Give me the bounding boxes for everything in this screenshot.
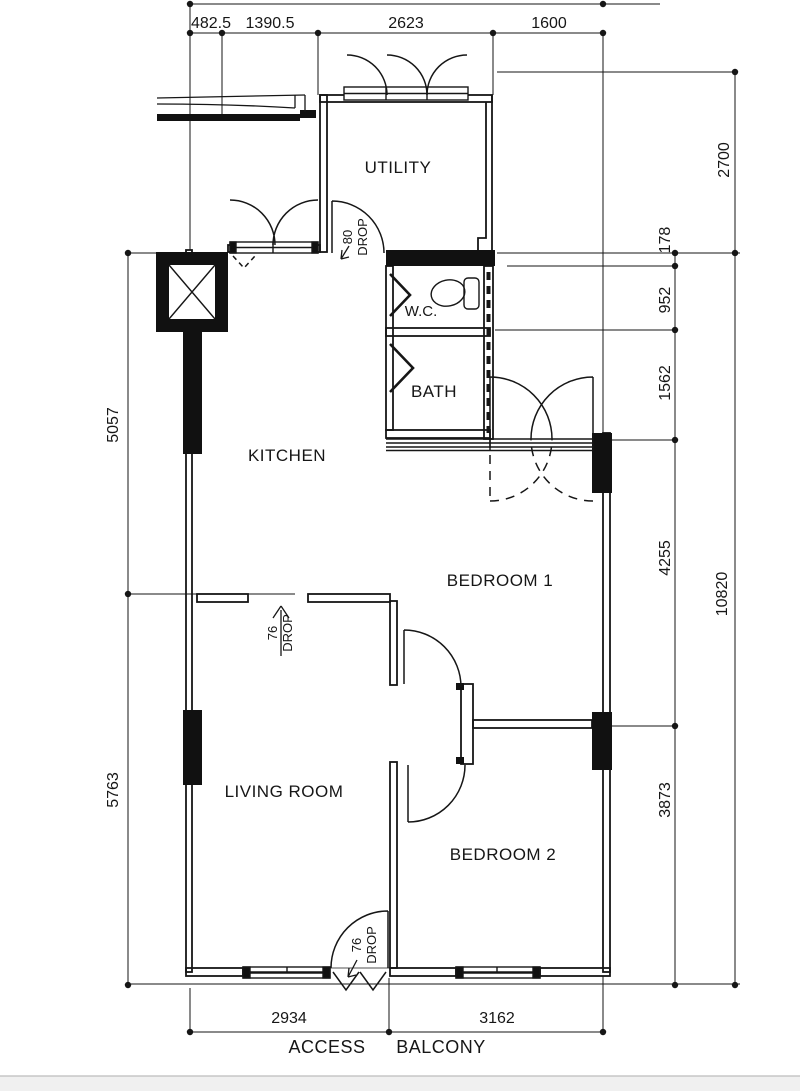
dim-top-4: 1600 (531, 15, 567, 32)
dim-top-1: 482.5 (191, 15, 231, 32)
room-label-utility: UTILITY (365, 158, 432, 177)
drop-arrows (273, 246, 357, 977)
dim-left-1: 5057 (105, 407, 122, 443)
bedroom1-column (592, 433, 612, 493)
wc-black-wall (386, 250, 495, 266)
dim-bottom-1: 2934 (271, 1010, 307, 1027)
room-label-bedroom2: BEDROOM 2 (450, 845, 557, 864)
footer-bar (0, 1076, 800, 1091)
zone-label-access: ACCESS (288, 1037, 365, 1057)
dim-right-inner-5: 3873 (657, 782, 674, 818)
room-label-living: LIVING ROOM (225, 782, 344, 801)
dimension-ticks (125, 1, 738, 1035)
walkway-canopy (157, 95, 305, 112)
zone-label-balcony: BALCONY (396, 1037, 486, 1057)
floor-plan-drawing: UTILITY KITCHEN W.C. BATH BEDROOM 1 LIVI… (0, 0, 800, 1091)
door-jamb-top (456, 683, 464, 690)
door-jamb-bottom (456, 757, 464, 764)
floor-plan-page: UTILITY KITCHEN W.C. BATH BEDROOM 1 LIVI… (0, 0, 800, 1091)
dimension-lines (128, 4, 740, 1032)
entry-drop-arrow (348, 960, 357, 977)
dim-right-inner-2: 952 (657, 287, 674, 314)
zone-labels: ACCESS BALCONY (288, 1037, 485, 1057)
room-label-bedroom1: BEDROOM 1 (447, 571, 554, 590)
walls (186, 95, 610, 976)
walkway-edge-bar-2 (300, 110, 316, 118)
dim-right-outer-2: 10820 (714, 572, 731, 617)
dim-bottom-2: 3162 (479, 1010, 515, 1027)
dim-top-2: 1390.5 (246, 15, 295, 32)
living-wall-pier (183, 710, 202, 785)
drop-labels: 80 DROP 76 DROP 76 DROP (265, 218, 379, 964)
kitchen-wall-pier (183, 332, 202, 454)
room-label-kitchen: KITCHEN (248, 446, 326, 465)
dim-right-inner-3: 1562 (657, 365, 674, 401)
room-label-bath: BATH (411, 382, 457, 401)
bedroom2-column (592, 712, 612, 770)
entry-drop-word: DROP (364, 926, 379, 964)
entry-drop-value: 76 (349, 938, 364, 952)
refuse-chute-inner (169, 265, 215, 319)
dim-right-outer-1: 2700 (716, 142, 733, 178)
room-label-wc: W.C. (405, 303, 438, 320)
dim-left-2: 5763 (105, 772, 122, 808)
utility-drop-value: 80 (340, 230, 355, 244)
walkway-edge-bar (157, 114, 300, 121)
kitchen-drop-word: DROP (280, 614, 295, 652)
dim-right-inner-1: 178 (657, 227, 674, 254)
dim-top-3: 2623 (388, 15, 424, 32)
utility-drop-arrow (341, 246, 349, 259)
utility-drop-word: DROP (355, 218, 370, 256)
kitchen-drop-value: 76 (265, 626, 280, 640)
dim-right-inner-4: 4255 (657, 540, 674, 576)
